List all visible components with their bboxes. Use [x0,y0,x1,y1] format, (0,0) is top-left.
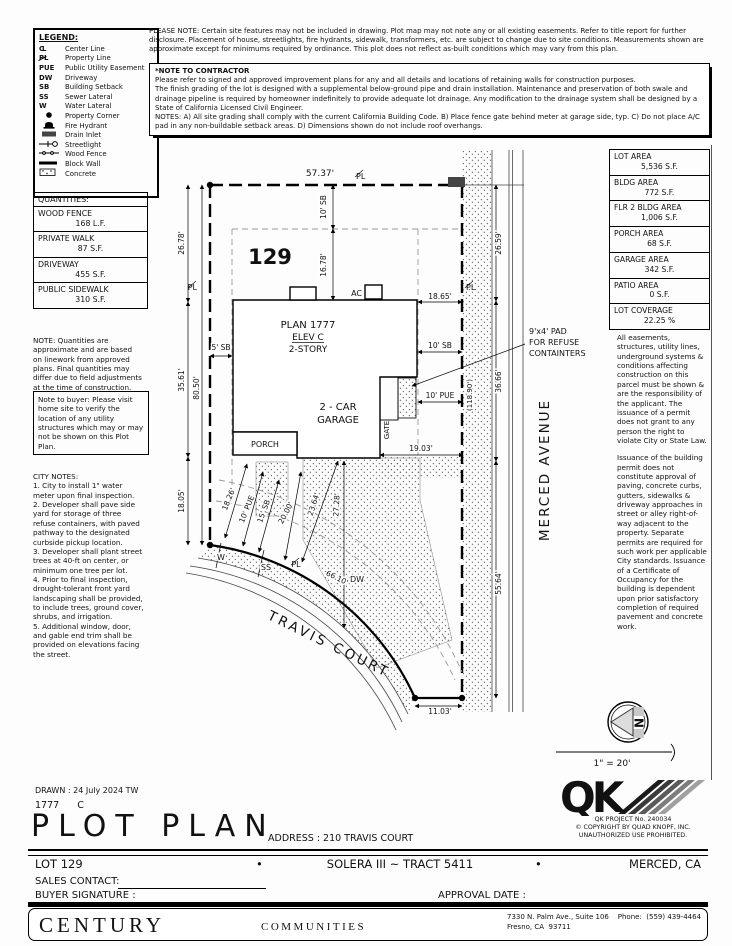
dim-10-sb-right: 10' SB [428,341,452,350]
quantity-row: WOOD FENCE168 L.F. [34,207,147,232]
dim-36-66: 36.66' [494,369,503,393]
dim-80-50: 80.50' [192,376,201,400]
plot-plan-sheet: AC 129 PLAN 1777 ELEV C 2-STORY 2 - CAR … [0,0,732,946]
ss-symbol: SS [39,93,65,101]
quantity-row: PRIVATE WALK87 S.F. [34,232,147,257]
story-label: 2-STORY [289,345,328,355]
north-label: N [633,718,647,728]
street-merced-avenue: MERCED AVENUE [537,399,553,541]
dim-118-90: (118.90') [466,379,474,411]
dim-27-28: 27.28' [331,493,341,517]
contractor-note-p3: NOTES: A) All site grading shall comply … [155,113,704,131]
elev-label: ELEV C [292,333,324,343]
sb-symbol: SB [39,83,65,91]
dim-18-05: 18.05' [177,489,186,513]
easements-note: All easements, structures, utility lines… [617,333,708,445]
please-note-text: PLEASE NOTE: Certain site features may n… [149,27,705,55]
pl-label-front: PL [291,560,301,569]
chimney [290,287,316,300]
permit-note: Issuance of the building permit does not… [617,453,708,631]
gate-label: GATE [383,421,391,439]
builder-brand: CENTURY [39,913,165,938]
builder-brand-secondary: COMMUNITIES [261,921,366,933]
pl-label-right: PL [466,283,476,292]
drain-inlet [448,177,465,187]
refuse-callout: 9'x4' PAD FOR REFUSE CONTAINTERS [529,327,586,358]
ac-label: AC [351,289,362,298]
dim-10-sb-top: 10' SB [319,195,328,219]
city-note-item: 2. Developer shall pave side yard for st… [33,500,146,547]
garage-label-2: GARAGE [317,415,359,426]
plan-label: PLAN 1777 [281,320,336,331]
svg-text:FOR REFUSE: FOR REFUSE [529,338,579,347]
builder-address: 7330 N. Palm Ave., Suite 106 Phone: (559… [507,913,701,933]
dim-26-59: 26.59' [494,231,503,255]
bullet: • [535,857,542,871]
dim-26-78: 26.78' [177,231,186,255]
merced-sidewalk [462,150,523,712]
contractor-note-title: *NOTE TO CONTRACTOR [155,67,704,76]
svg-text:CONTAINTERS: CONTAINTERS [529,349,586,358]
quantity-row: PUBLIC SIDEWALK310 S.F. [34,283,147,307]
pl-label-top: PL [356,172,366,181]
city-note-item: 4. Prior to final inspection, drought-to… [33,575,146,622]
centerline-symbol: CL [39,45,65,53]
city-notes-title: CITY NOTES: [33,472,146,481]
dw-symbol: DW [39,74,65,82]
areas-table: LOT AREA5,536 S.F. BLDG AREA772 S.F. FLR… [609,149,710,330]
city-label: MERCED, CA [606,857,701,871]
w-symbol: W [39,102,65,110]
city-note-item: 3. Developer shall plant street trees at… [33,547,146,575]
dim-16-78: 16.78' [319,253,328,277]
quantities-note: NOTE: Quantities are approximate and are… [33,336,143,392]
dim-18-26: 18.26' [220,486,237,511]
buyer-signature-label: BUYER SIGNATURE : [35,890,136,901]
lot-number: 129 [248,245,292,269]
pue-symbol: PUE [39,64,65,72]
builder-footer: CENTURY COMMUNITIES 7330 N. Palm Ave., S… [28,908,708,941]
buyer-note-box: Note to buyer: Please visit home site to… [33,391,149,455]
dim-55-64: 55.64' [494,571,503,595]
north-arrow: N [608,702,648,742]
svg-text:9'x4' PAD: 9'x4' PAD [529,327,567,336]
contractor-note-box: *NOTE TO CONTRACTOR Please refer to sign… [149,63,710,136]
area-row: GARAGE AREA342 S.F. [610,253,709,279]
sheet-border-right [711,145,712,780]
property-line-symbol: PL [39,54,48,62]
quantities-title: QUANTITIES: [34,193,147,207]
scale-bar: 1" = 20' [556,744,675,769]
approval-date-label: APPROVAL DATE : [438,890,526,901]
dim-top: 57.37' [306,169,334,179]
lot-label: LOT 129 [35,857,83,871]
qk-credits: QK PROJECT No. 240034 © COPYRIGHT BY QUA… [556,816,710,841]
area-row: FLR 2 BLDG AREA1,006 S.F. [610,201,709,227]
drawn-line: DRAWN : 24 July 2024 TW [35,786,138,795]
area-row: LOT AREA5,536 S.F. [610,150,709,176]
lot-row: LOT 129 • SOLERA III ~ TRACT 5411 • MERC… [28,853,708,875]
divider-bar [28,902,708,907]
dim-11-03: 11.03' [428,707,452,716]
ac-unit [365,285,382,299]
area-row: PATIO AREA0 S.F. [610,279,709,305]
drain-inlet-icon [39,130,65,140]
quantities-table: QUANTITIES: WOOD FENCE168 L.F. PRIVATE W… [33,192,148,309]
bullet: • [256,857,263,871]
city-note-item: 1. City to install 1" water meter upon f… [33,481,146,500]
area-row: PORCH AREA68 S.F. [610,227,709,253]
sales-contact-label: SALES CONTACT: [35,876,119,887]
garage-label-1: 2 - CAR [319,402,356,413]
tract-label: SOLERA III ~ TRACT 5411 [270,857,530,871]
wood-fence-icon [39,149,65,159]
area-row: LOT COVERAGE22.25 % [610,304,709,329]
svg-text:QK: QK [560,776,626,816]
dim-10-pue-front: 10' PUE [237,494,256,524]
right-column-notes: All easements, structures, utility lines… [617,333,708,639]
dim-35-61: 35.61' [177,368,186,392]
sheet-title: PLOT PLAN [31,809,276,844]
qk-logo: QK [558,776,710,816]
legend-title: LEGEND: [39,33,153,42]
scale-label: 1" = 20' [593,759,630,769]
driveway-label: DW [350,575,364,584]
water-lateral-label: W [217,553,225,562]
legend-box: LEGEND: CLCenter Line PLProperty Line PU… [33,28,159,198]
refuse-pad [398,378,416,418]
qk-project-number: QK PROJECT No. 240034 [556,816,710,824]
area-row: BLDG AREA772 S.F. [610,176,709,202]
gate-area [380,377,398,420]
concrete-icon [39,168,65,179]
address-line: ADDRESS : 210 TRAVIS COURT [268,833,413,844]
contractor-note-p2: The finish grading of the lot is designe… [155,85,704,113]
porch-label: PORCH [251,440,279,449]
sewer-lateral-label: SS [261,563,271,572]
contractor-note-p1: Please refer to signed and approved impr… [155,76,704,85]
qk-copyright: © COPYRIGHT BY QUAD KNOPF, INC. [556,824,710,832]
city-note-item: 5. Additional window, door, and gable en… [33,622,146,659]
quantity-row: DRIVEWAY455 S.F. [34,258,147,283]
dim-10-pue-right: 10' PUE [426,391,455,400]
city-notes: CITY NOTES: 1. City to install 1" water … [33,472,146,659]
dim-19-03: 19.03' [409,444,433,453]
dim-18-65: 18.65' [428,292,452,301]
qk-prohibited: UNAUTHORIZED USE PROHIBITED. [556,832,710,840]
streetlight-icon [39,140,65,150]
sales-contact-field[interactable] [118,876,266,889]
dim-5-sb: 5' SB [211,343,230,352]
